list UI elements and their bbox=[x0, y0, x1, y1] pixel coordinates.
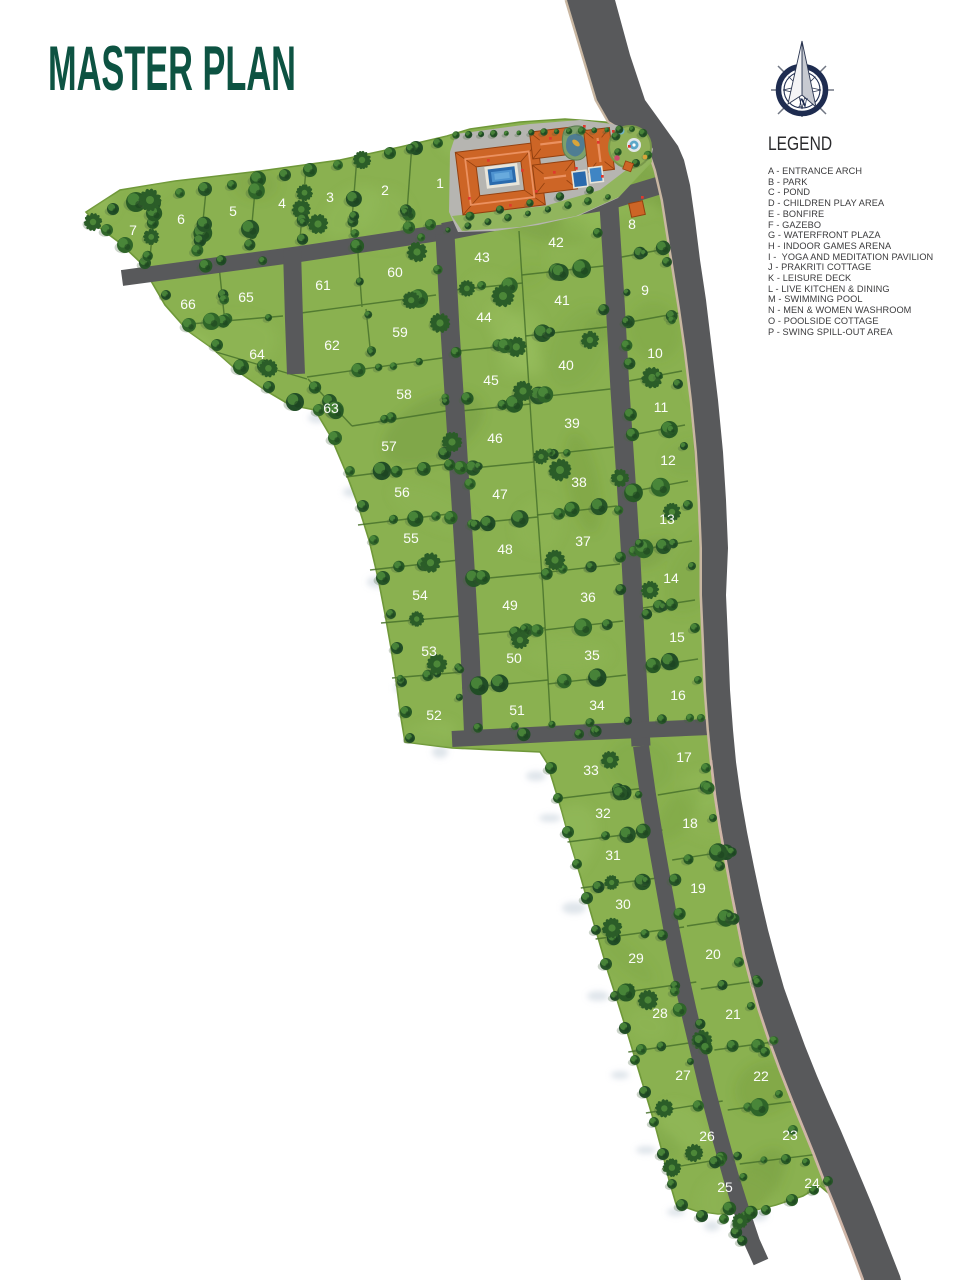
svg-text:66: 66 bbox=[180, 296, 196, 312]
svg-text:30: 30 bbox=[615, 896, 631, 912]
svg-text:57: 57 bbox=[381, 438, 397, 454]
svg-text:55: 55 bbox=[403, 530, 419, 546]
svg-text:40: 40 bbox=[558, 357, 574, 373]
svg-text:3: 3 bbox=[326, 189, 334, 205]
svg-text:60: 60 bbox=[387, 264, 403, 280]
svg-text:13: 13 bbox=[659, 511, 675, 527]
svg-text:31: 31 bbox=[605, 847, 621, 863]
svg-text:10: 10 bbox=[647, 345, 663, 361]
svg-text:45: 45 bbox=[483, 372, 499, 388]
svg-text:38: 38 bbox=[571, 474, 587, 490]
svg-text:37: 37 bbox=[575, 533, 591, 549]
svg-text:28: 28 bbox=[652, 1005, 668, 1021]
svg-text:52: 52 bbox=[426, 707, 442, 723]
svg-text:6: 6 bbox=[177, 211, 185, 227]
svg-text:27: 27 bbox=[675, 1067, 691, 1083]
svg-text:62: 62 bbox=[324, 337, 340, 353]
svg-text:54: 54 bbox=[412, 587, 428, 603]
svg-text:19: 19 bbox=[690, 880, 706, 896]
svg-text:26: 26 bbox=[699, 1128, 715, 1144]
svg-text:61: 61 bbox=[315, 277, 331, 293]
svg-text:18: 18 bbox=[682, 815, 698, 831]
svg-text:36: 36 bbox=[580, 589, 596, 605]
svg-text:16: 16 bbox=[670, 687, 686, 703]
svg-text:25: 25 bbox=[717, 1179, 733, 1195]
svg-text:39: 39 bbox=[564, 415, 580, 431]
svg-text:32: 32 bbox=[595, 805, 611, 821]
svg-text:N: N bbox=[797, 95, 808, 110]
svg-text:24: 24 bbox=[804, 1175, 820, 1191]
svg-text:59: 59 bbox=[392, 324, 408, 340]
svg-text:44: 44 bbox=[476, 309, 492, 325]
svg-text:51: 51 bbox=[509, 702, 525, 718]
svg-text:20: 20 bbox=[705, 946, 721, 962]
svg-text:46: 46 bbox=[487, 430, 503, 446]
svg-text:58: 58 bbox=[396, 386, 412, 402]
svg-text:29: 29 bbox=[628, 950, 644, 966]
svg-text:35: 35 bbox=[584, 647, 600, 663]
svg-text:64: 64 bbox=[249, 346, 265, 362]
svg-text:41: 41 bbox=[554, 292, 570, 308]
svg-text:4: 4 bbox=[278, 195, 286, 211]
svg-text:56: 56 bbox=[394, 484, 410, 500]
svg-text:8: 8 bbox=[628, 216, 636, 232]
svg-text:7: 7 bbox=[129, 222, 137, 238]
svg-text:63: 63 bbox=[323, 400, 339, 416]
svg-text:11: 11 bbox=[654, 399, 669, 415]
svg-text:12: 12 bbox=[660, 452, 676, 468]
svg-text:14: 14 bbox=[663, 570, 679, 586]
svg-text:23: 23 bbox=[782, 1127, 798, 1143]
svg-text:5: 5 bbox=[229, 203, 237, 219]
svg-text:49: 49 bbox=[502, 597, 518, 613]
svg-text:1: 1 bbox=[436, 175, 444, 191]
svg-text:47: 47 bbox=[492, 486, 508, 502]
svg-text:22: 22 bbox=[753, 1068, 769, 1084]
svg-text:34: 34 bbox=[589, 697, 605, 713]
svg-text:2: 2 bbox=[381, 182, 389, 198]
svg-text:9: 9 bbox=[641, 282, 649, 298]
svg-text:50: 50 bbox=[506, 650, 522, 666]
svg-text:17: 17 bbox=[676, 749, 692, 765]
svg-text:33: 33 bbox=[583, 762, 599, 778]
svg-text:43: 43 bbox=[474, 249, 490, 265]
svg-text:65: 65 bbox=[238, 289, 254, 305]
svg-text:53: 53 bbox=[421, 643, 437, 659]
svg-text:15: 15 bbox=[669, 629, 685, 645]
svg-text:21: 21 bbox=[725, 1006, 741, 1022]
svg-text:48: 48 bbox=[497, 541, 513, 557]
svg-text:42: 42 bbox=[548, 234, 564, 250]
